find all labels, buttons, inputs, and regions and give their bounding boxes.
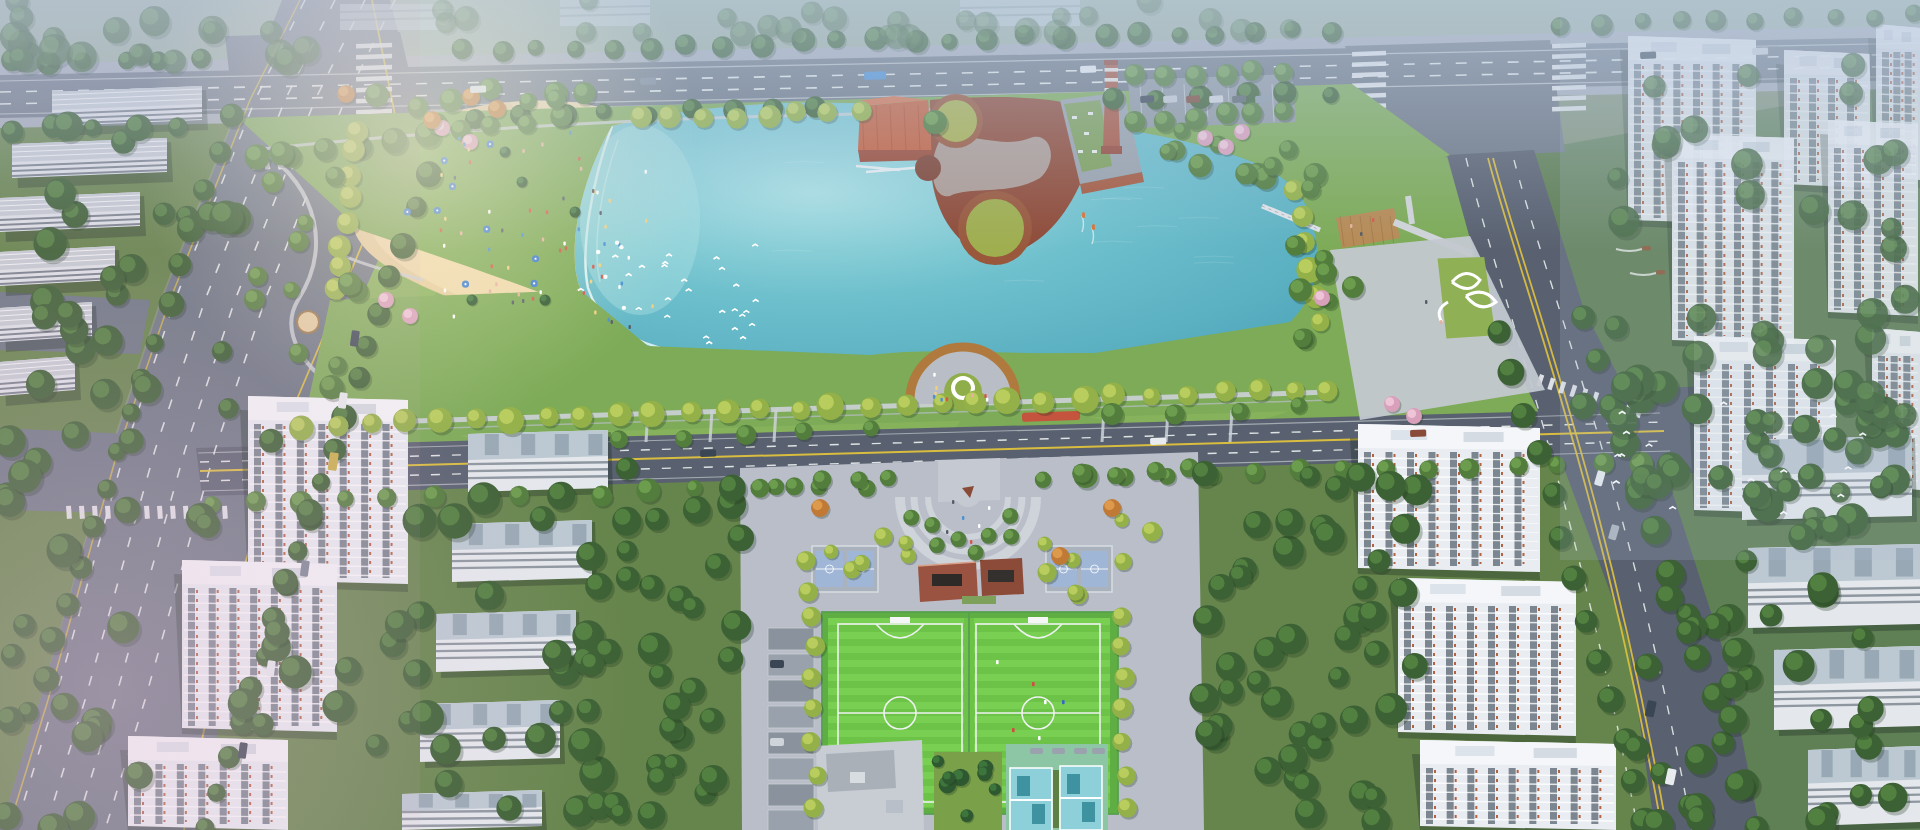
tennis-courts <box>1006 744 1108 830</box>
person <box>962 516 964 520</box>
person <box>952 500 954 504</box>
person <box>978 524 980 528</box>
player <box>1032 682 1035 686</box>
aerial-masterplan-rendering <box>0 0 1920 830</box>
person <box>971 393 973 397</box>
person <box>940 398 942 402</box>
person <box>988 506 990 510</box>
person <box>933 373 935 377</box>
person <box>935 386 937 390</box>
vehicle <box>1150 437 1166 445</box>
person <box>946 530 948 534</box>
person <box>1440 320 1442 324</box>
rendering-canvas <box>0 0 1920 830</box>
lounger <box>1092 748 1105 754</box>
player <box>1062 700 1065 704</box>
vehicle <box>1410 429 1426 437</box>
person <box>970 540 972 544</box>
player <box>1044 700 1047 704</box>
person <box>986 398 988 402</box>
person <box>1425 300 1427 304</box>
lounger <box>1030 748 1043 754</box>
lounger <box>1074 748 1087 754</box>
player <box>996 660 999 664</box>
person <box>933 395 935 399</box>
lounger <box>1052 748 1065 754</box>
vehicle <box>700 449 716 457</box>
player <box>1012 728 1015 732</box>
residential-tower <box>1412 740 1616 830</box>
person <box>984 394 986 398</box>
person <box>946 397 948 401</box>
player <box>1038 736 1041 740</box>
